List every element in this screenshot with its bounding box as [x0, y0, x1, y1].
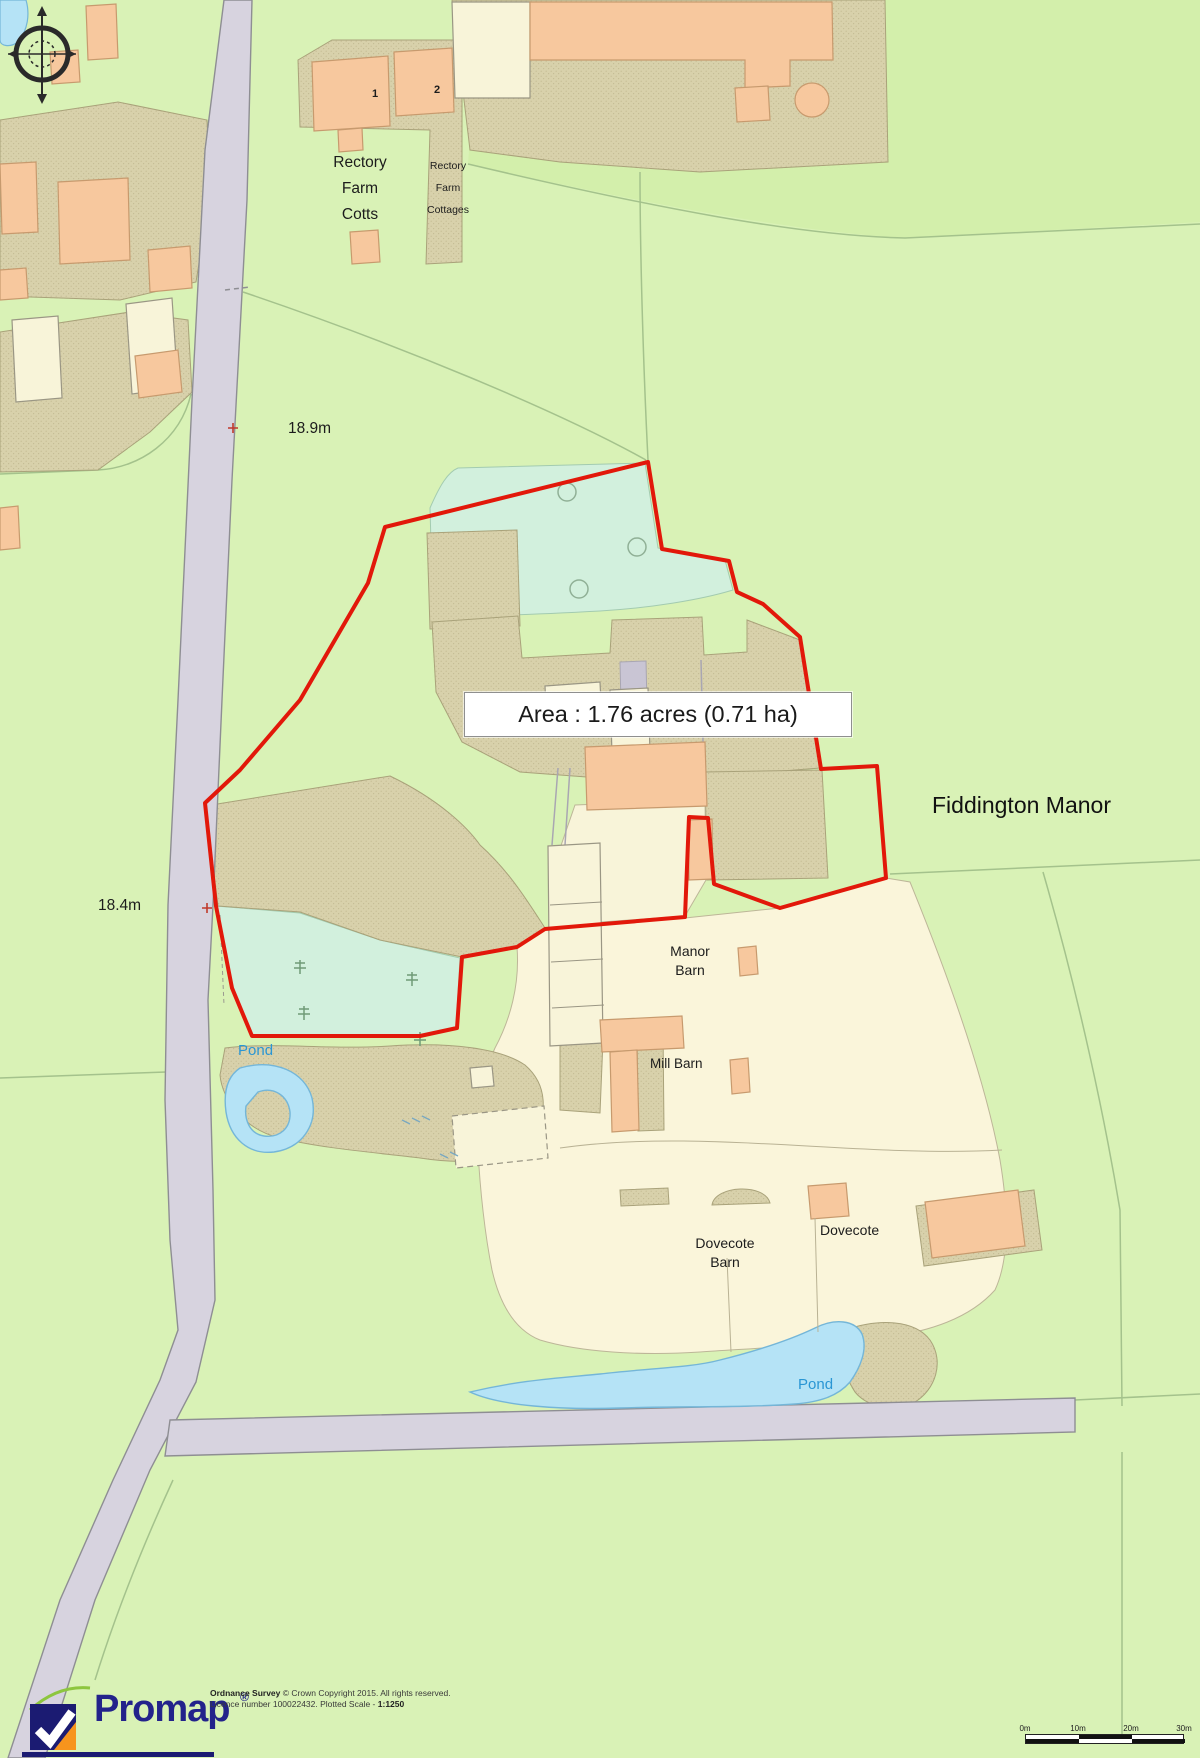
label-dovecote: Dovecote — [820, 1222, 879, 1238]
copyright-note: Ordnance Survey © Crown Copyright 2015. … — [210, 1688, 451, 1710]
os-map-canvas — [0, 0, 1200, 1758]
label-spot-height-north: 18.9m — [288, 420, 331, 438]
property-name-label: Fiddington Manor — [932, 792, 1111, 819]
label-manor-barn: Manor Barn — [652, 942, 728, 980]
scale-tick-20: 20m — [1123, 1724, 1139, 1733]
scale-bar-rule — [1025, 1734, 1184, 1744]
label-mill-barn: Mill Barn — [650, 1056, 703, 1071]
copyright-line-1: Ordnance Survey © Crown Copyright 2015. … — [210, 1688, 451, 1699]
copyright-text-2: Licence number 100022432. Plotted Scale … — [210, 1699, 378, 1709]
scale-tick-0: 0m — [1019, 1724, 1030, 1733]
label-cottage-2: 2 — [434, 84, 440, 96]
scale-tick-10: 10m — [1070, 1724, 1086, 1733]
open-barn-dashed — [452, 1106, 548, 1168]
label-rectory-farm-cotts: Rectory Farm Cotts — [322, 150, 398, 228]
label-pond-south: Pond — [798, 1376, 833, 1393]
label-spot-height-south: 18.4m — [98, 897, 141, 915]
scale-bar: 0m 10m 20m 30m — [1018, 1724, 1192, 1750]
plotted-scale: 1:1250 — [378, 1699, 404, 1709]
label-cottage-1: 1 — [372, 88, 378, 100]
label-pond-west: Pond — [238, 1042, 273, 1059]
map-viewport: Rectory Farm Cotts Rectory Farm Cottages… — [0, 0, 1200, 1758]
scale-bar-labels: 0m 10m 20m 30m — [1018, 1724, 1192, 1734]
promap-logo-underline — [22, 1752, 214, 1757]
label-dovecote-barn: Dovecote Barn — [680, 1234, 770, 1272]
copyright-text-1: © Crown Copyright 2015. All rights reser… — [283, 1688, 451, 1698]
area-label: Area : 1.76 acres (0.71 ha) — [464, 692, 852, 737]
copyright-line-2: Licence number 100022432. Plotted Scale … — [210, 1699, 451, 1710]
scale-tick-30: 30m — [1176, 1724, 1192, 1733]
copyright-os: Ordnance Survey — [210, 1688, 280, 1698]
promap-logo-mark — [28, 1686, 92, 1752]
label-rectory-farm-cottages: Rectory Farm Cottages — [418, 155, 478, 221]
